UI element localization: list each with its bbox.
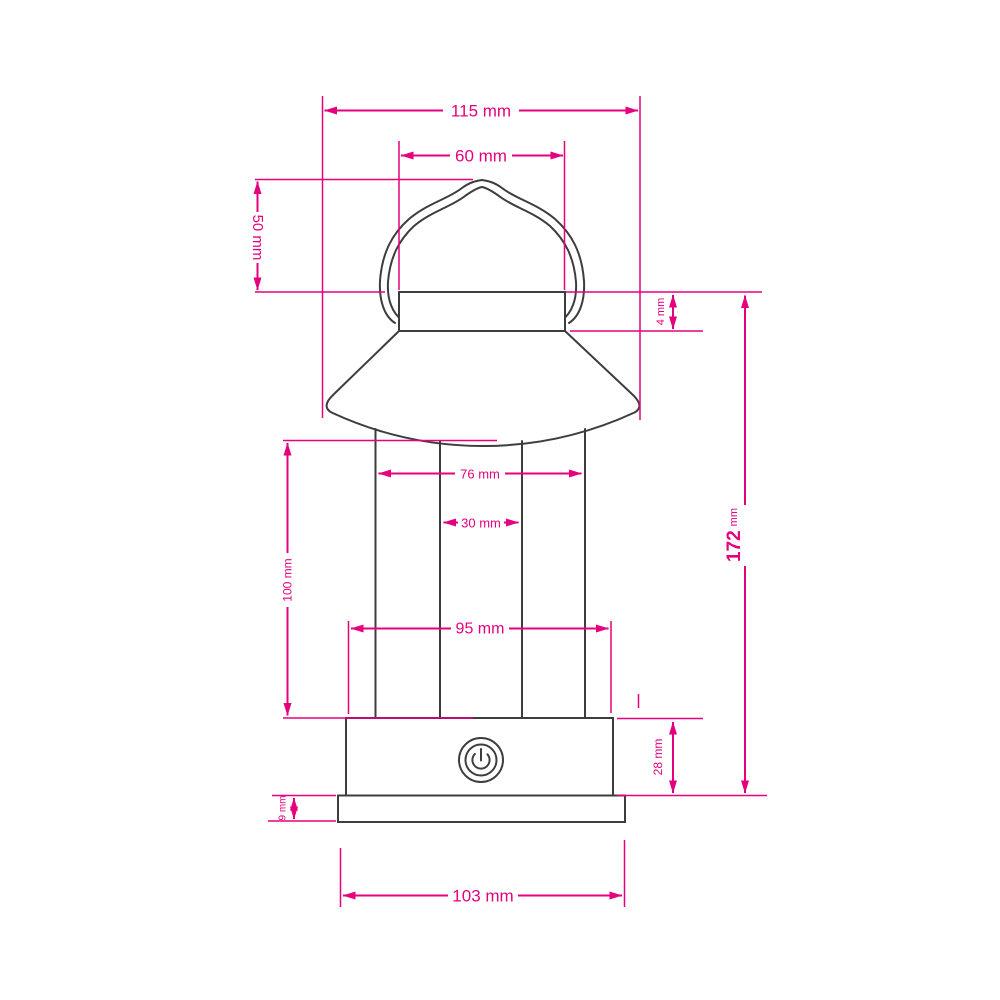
power-icon bbox=[459, 738, 503, 782]
dimension-cap-width: 60 mm bbox=[399, 141, 565, 290]
dim-label-handle-height: 50 mm bbox=[249, 215, 266, 261]
dimension-handle-height: 50 mm bbox=[249, 180, 473, 293]
dimension-cap-band-height: 4 mm bbox=[566, 292, 762, 331]
lantern-diagram-svg: 115 mm 60 mm 50 mm 4 mm 172mm 76 mm bbox=[0, 0, 1000, 1000]
dim-label-column-height: 100 mm bbox=[281, 558, 295, 601]
dim-label-column-outer-width: 76 mm bbox=[460, 467, 500, 482]
lamp-shade bbox=[327, 331, 640, 446]
dim-label-base-height: 28 mm bbox=[651, 739, 665, 776]
dim-label-cap-band-height: 4 mm bbox=[655, 298, 667, 326]
dim-label-total-height: 172mm bbox=[724, 508, 745, 562]
dim-label-foot-width: 103 mm bbox=[452, 887, 513, 906]
dim-label-base-width: 95 mm bbox=[456, 621, 505, 638]
base-body bbox=[346, 718, 613, 796]
dimension-base-height: 28 mm bbox=[617, 694, 703, 793]
foot-plinth bbox=[338, 796, 625, 823]
dimension-column-outer-width: 76 mm bbox=[379, 467, 582, 482]
lantern-outline bbox=[327, 180, 640, 822]
cap-band bbox=[399, 292, 565, 331]
dimension-base-width: 95 mm bbox=[349, 621, 612, 715]
dimension-drawing: 115 mm 60 mm 50 mm 4 mm 172mm 76 mm bbox=[0, 0, 1000, 1000]
dim-label-foot-height: 9 mm bbox=[278, 796, 289, 821]
dim-label-column-inner-width: 30 mm bbox=[461, 516, 501, 531]
dim-label-cap-width: 60 mm bbox=[455, 147, 507, 166]
dim-label-shade-width: 115 mm bbox=[451, 102, 511, 121]
dimension-column-height: 100 mm bbox=[281, 441, 498, 719]
dimension-foot-height: 9 mm bbox=[268, 796, 336, 822]
dimension-foot-width: 103 mm bbox=[341, 840, 625, 907]
dimension-column-inner-width: 30 mm bbox=[444, 516, 519, 531]
